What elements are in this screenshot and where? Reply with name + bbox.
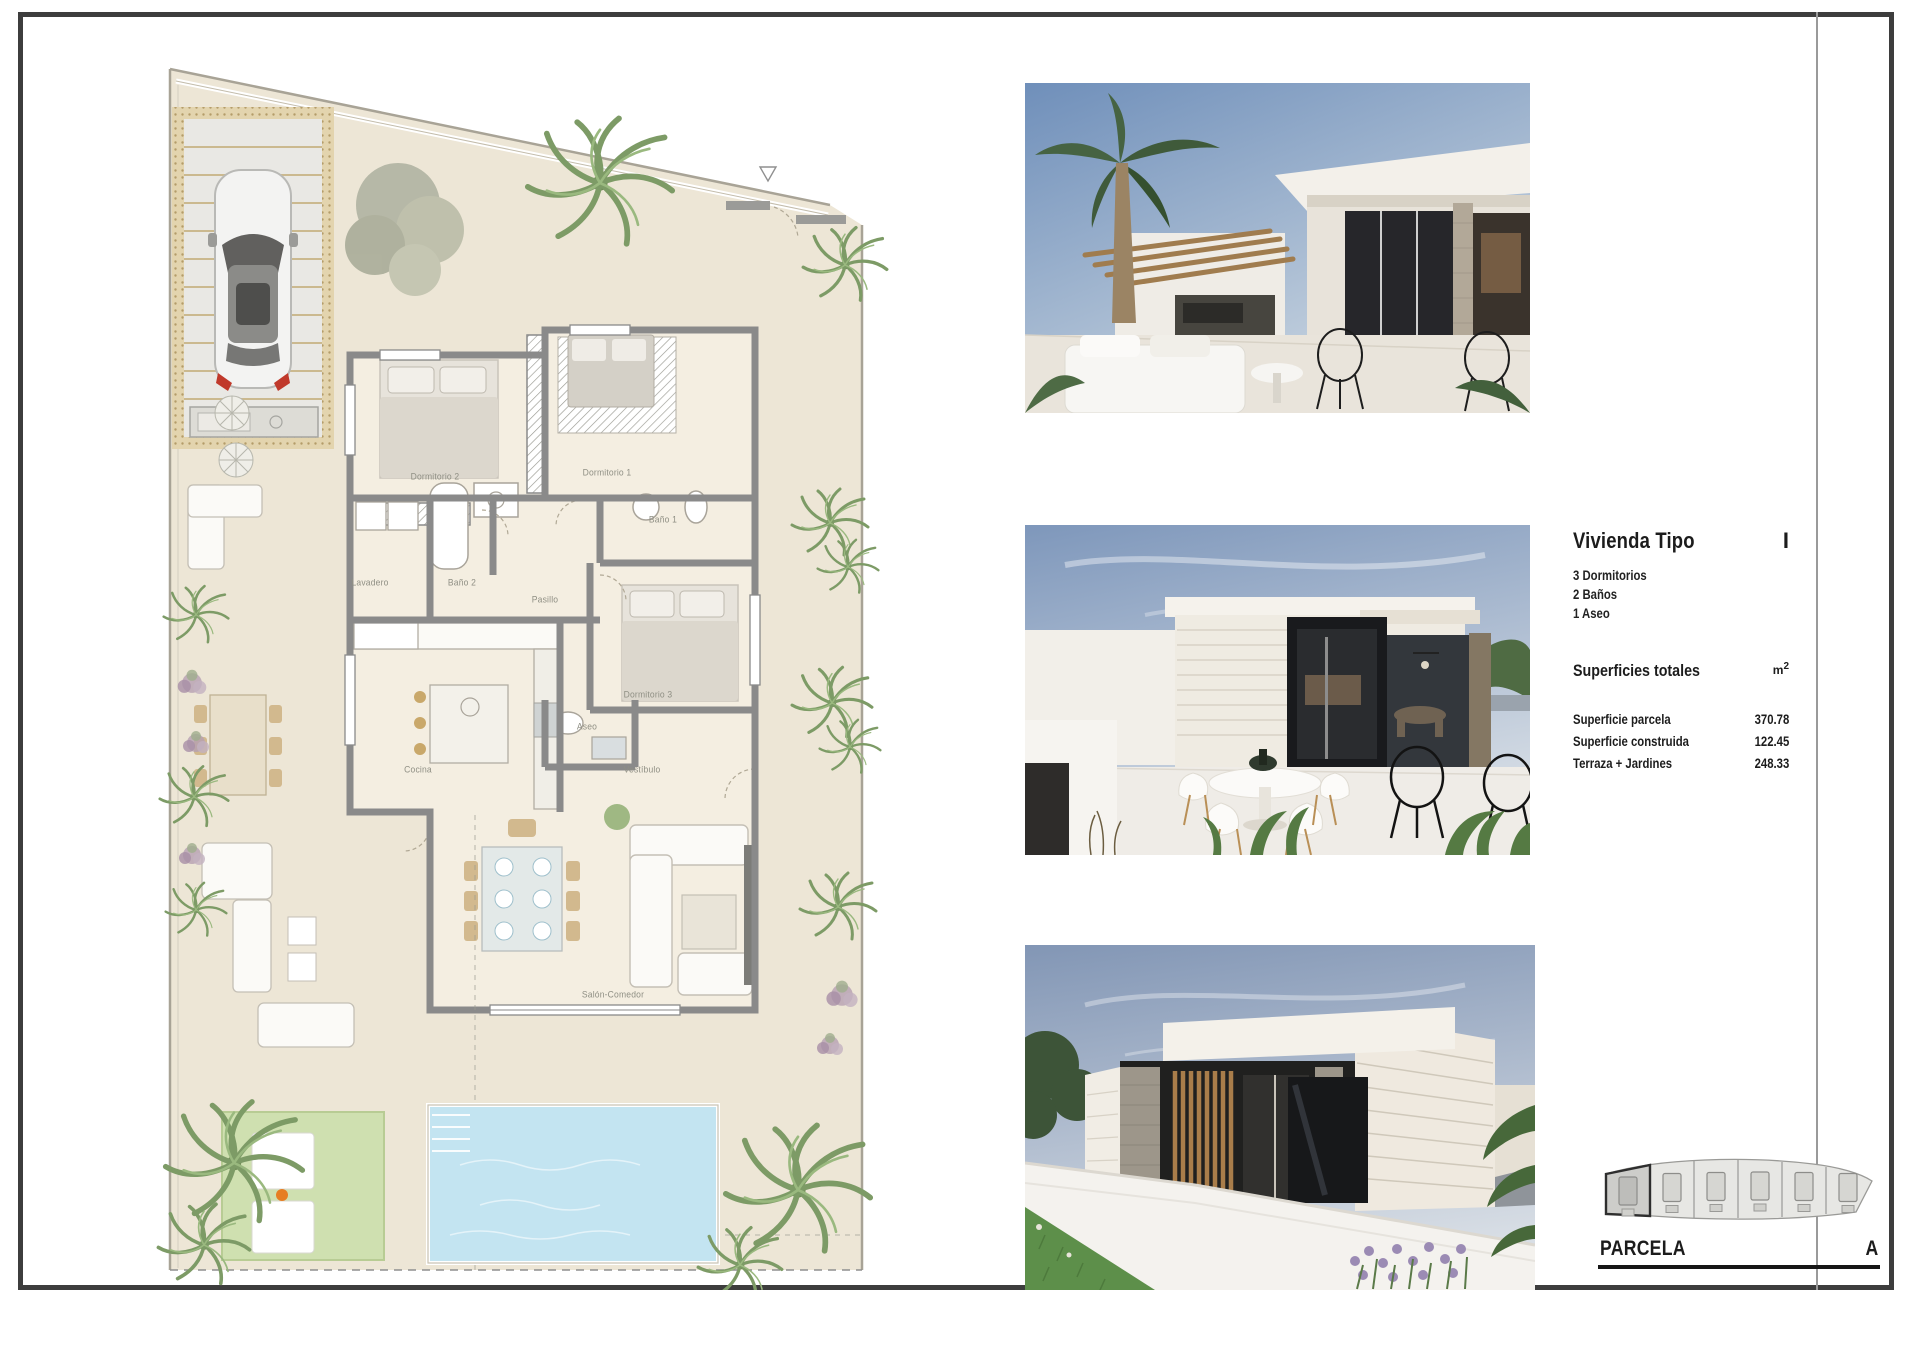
superficie-row: Terraza + Jardines248.33 — [1573, 753, 1789, 775]
villa-type-title: Vivienda Tipo — [1573, 528, 1695, 554]
lawn — [222, 1112, 384, 1260]
car-icon — [208, 170, 298, 391]
room-label-cocina: Cocina — [404, 765, 432, 776]
render-terrace-pergola — [1025, 83, 1530, 413]
room-label-pasillo: Pasillo — [532, 595, 558, 606]
superficie-value: 122.45 — [1754, 731, 1789, 753]
parcela-underline — [1598, 1265, 1880, 1269]
room-label-dormitorio-2: Dormitorio 2 — [411, 472, 460, 483]
superficie-row: Superficie parcela370.78 — [1573, 709, 1789, 731]
room-label-ba-o-2: Baño 2 — [448, 578, 476, 589]
superficies-table: Superficie parcela370.78Superficie const… — [1573, 709, 1789, 775]
feature-item: 2 Baños — [1573, 585, 1754, 604]
info-panel: Vivienda Tipo I 3 Dormitorios2 Baños1 As… — [1573, 528, 1789, 775]
room-label-dormitorio-3: Dormitorio 3 — [624, 690, 673, 701]
title-block-divider — [1816, 12, 1818, 1290]
feature-list: 3 Dormitorios2 Baños1 Aseo — [1573, 566, 1789, 623]
site-plan — [1598, 1148, 1880, 1226]
parcela-letter: A — [1865, 1237, 1878, 1261]
room-label-dormitorio-1: Dormitorio 1 — [583, 468, 632, 479]
floor-plan: Dormitorio 2Dormitorio 1Baño 1LavaderoBa… — [130, 55, 900, 1290]
render-terrace-dining — [1025, 525, 1530, 855]
superficie-label: Superficie parcela — [1573, 709, 1671, 731]
superficie-value: 370.78 — [1754, 709, 1789, 731]
site-plan-house-footprint — [1795, 1173, 1813, 1201]
parcela-block: PARCELA A — [1598, 1148, 1880, 1269]
room-label-ba-o-1: Baño 1 — [649, 515, 677, 526]
garage-carport — [178, 113, 328, 443]
site-plan-house-footprint — [1619, 1177, 1637, 1205]
superficie-label: Superficie construida — [1573, 731, 1689, 753]
parcela-label: PARCELA — [1600, 1237, 1686, 1261]
room-label-vest-bulo: Vestíbulo — [624, 765, 661, 776]
render-street-facade — [1025, 945, 1535, 1290]
superficie-value: 248.33 — [1754, 753, 1789, 775]
site-plan-house-footprint — [1751, 1172, 1769, 1200]
superficie-label: Terraza + Jardines — [1573, 753, 1672, 775]
floor-plan-drawing — [130, 55, 900, 1290]
room-label-aseo: Aseo — [577, 722, 597, 733]
site-plan-house-footprint — [1839, 1174, 1857, 1202]
feature-item: 1 Aseo — [1573, 604, 1754, 623]
unit-m2: m2 — [1773, 661, 1789, 677]
superficie-row: Superficie construida122.45 — [1573, 731, 1789, 753]
room-label-lavadero: Lavadero — [351, 578, 388, 589]
villa-type-letter: I — [1783, 528, 1789, 554]
site-plan-house-footprint — [1663, 1174, 1681, 1202]
plan-sheet: Dormitorio 2Dormitorio 1Baño 1LavaderoBa… — [0, 0, 1920, 1357]
superficies-title: Superficies totales — [1573, 661, 1700, 681]
site-plan-house-footprint — [1707, 1173, 1725, 1201]
room-label-sal-n-comedor: Salón-Comedor — [582, 990, 644, 1001]
pool — [428, 1105, 718, 1263]
feature-item: 3 Dormitorios — [1573, 566, 1754, 585]
